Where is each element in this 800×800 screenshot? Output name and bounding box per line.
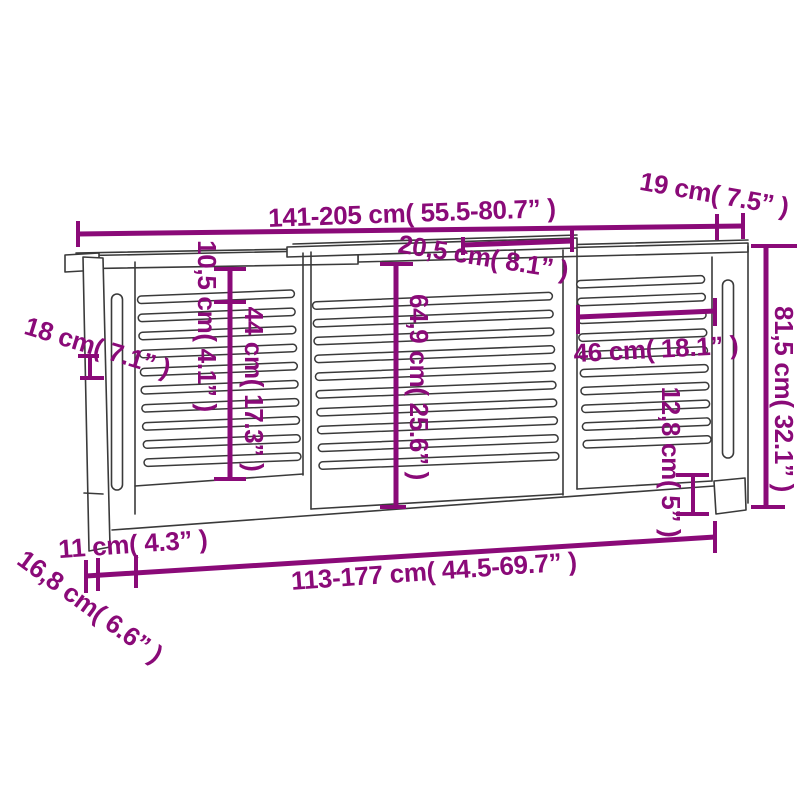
center-slat-grille — [312, 292, 559, 469]
slat — [583, 436, 711, 449]
label-foot-width: 11 cm( 4.3” ) — [57, 524, 208, 564]
slat — [144, 453, 301, 467]
label-base-depth: 16,8 cm( 6.6” ) — [12, 544, 169, 669]
left-vent-slot — [112, 294, 123, 490]
right-foot — [714, 478, 746, 514]
slat — [143, 435, 300, 449]
label-side-section-height: 44 cm( 17.3” ) — [239, 307, 269, 472]
right-side-panel — [712, 246, 748, 514]
slat — [582, 418, 710, 431]
left-side-board — [83, 257, 110, 551]
label-top-rail-height: 10,5 cm( 4.1” ) — [192, 240, 222, 412]
slat — [577, 293, 705, 306]
label-top-shelf-depth: 19 cm( 7.5” ) — [638, 166, 792, 222]
slat — [142, 417, 299, 431]
right-vent-slot — [723, 280, 734, 458]
slat — [581, 382, 709, 395]
label-center-section-height: 64,9 cm( 25.6” ) — [404, 294, 434, 480]
slat — [316, 381, 556, 398]
slat — [315, 363, 555, 380]
slat — [577, 276, 705, 289]
slat — [582, 400, 710, 413]
slat — [317, 417, 557, 434]
label-overall-height: 81,5 cm( 32.1” ) — [769, 306, 799, 492]
slat — [319, 452, 559, 469]
slat — [318, 435, 558, 452]
slat — [317, 399, 557, 416]
radiator-cover-dimension-diagram: 141-205 cm( 55.5-80.7” ) 19 cm( 7.5” ) 2… — [0, 0, 800, 800]
left-side-panel — [83, 257, 135, 551]
label-bottom-clearance-height: 12,8 cm( 5” ) — [656, 387, 686, 538]
label-top-overlap-width: 20,5 cm( 8.1” ) — [396, 229, 570, 286]
